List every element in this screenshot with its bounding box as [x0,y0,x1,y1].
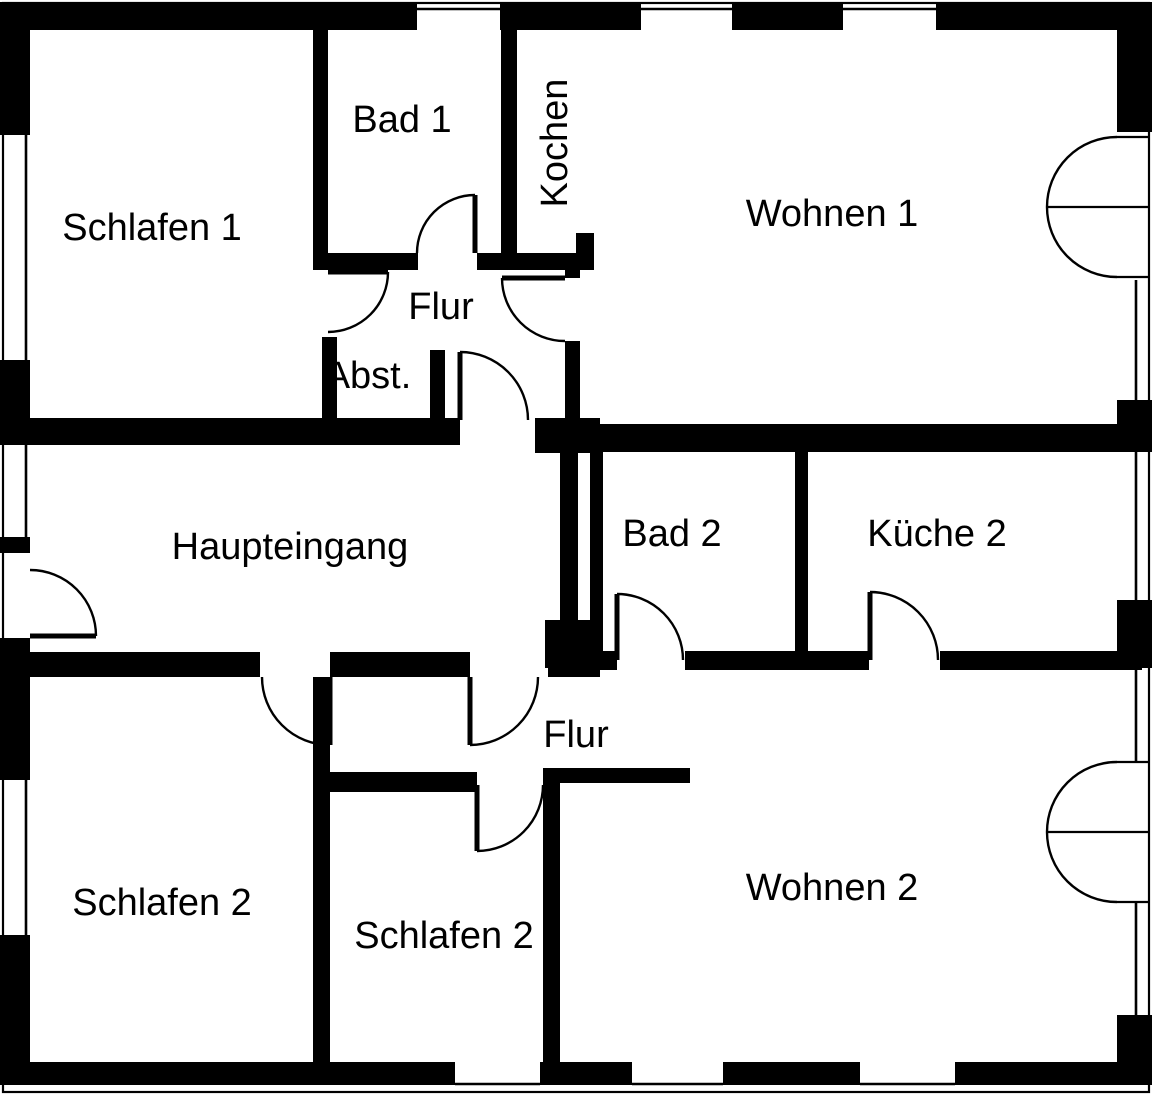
room-label-bad-1: Bad 1 [352,99,451,141]
room-label-flur-unten: Flur [543,714,609,756]
room-label-wohnen-2: Wohnen 2 [746,867,919,909]
room-label-haupteingang: Haupteingang [172,526,409,568]
room-label-kueche-2: Küche 2 [867,513,1006,555]
room-label-bad-2: Bad 2 [622,513,721,555]
floor-plan: Schlafen 1Bad 1KochenWohnen 1FlurAbst.Ha… [0,0,1152,1095]
floor-plan-svg: Schlafen 1Bad 1KochenWohnen 1FlurAbst.Ha… [0,0,1152,1095]
room-label-flur-oben: Flur [408,286,474,328]
room-label-abstellraum: Abst. [325,355,412,397]
room-labels: Schlafen 1Bad 1KochenWohnen 1FlurAbst.Ha… [62,79,1007,957]
room-label-schlafen-1: Schlafen 1 [62,207,242,249]
room-label-schlafen-2-mitte: Schlafen 2 [354,915,534,957]
french-doors [1047,137,1148,902]
room-label-kochen: Kochen [534,79,576,208]
room-label-wohnen-1: Wohnen 1 [746,193,919,235]
room-label-schlafen-2-links: Schlafen 2 [72,882,252,924]
